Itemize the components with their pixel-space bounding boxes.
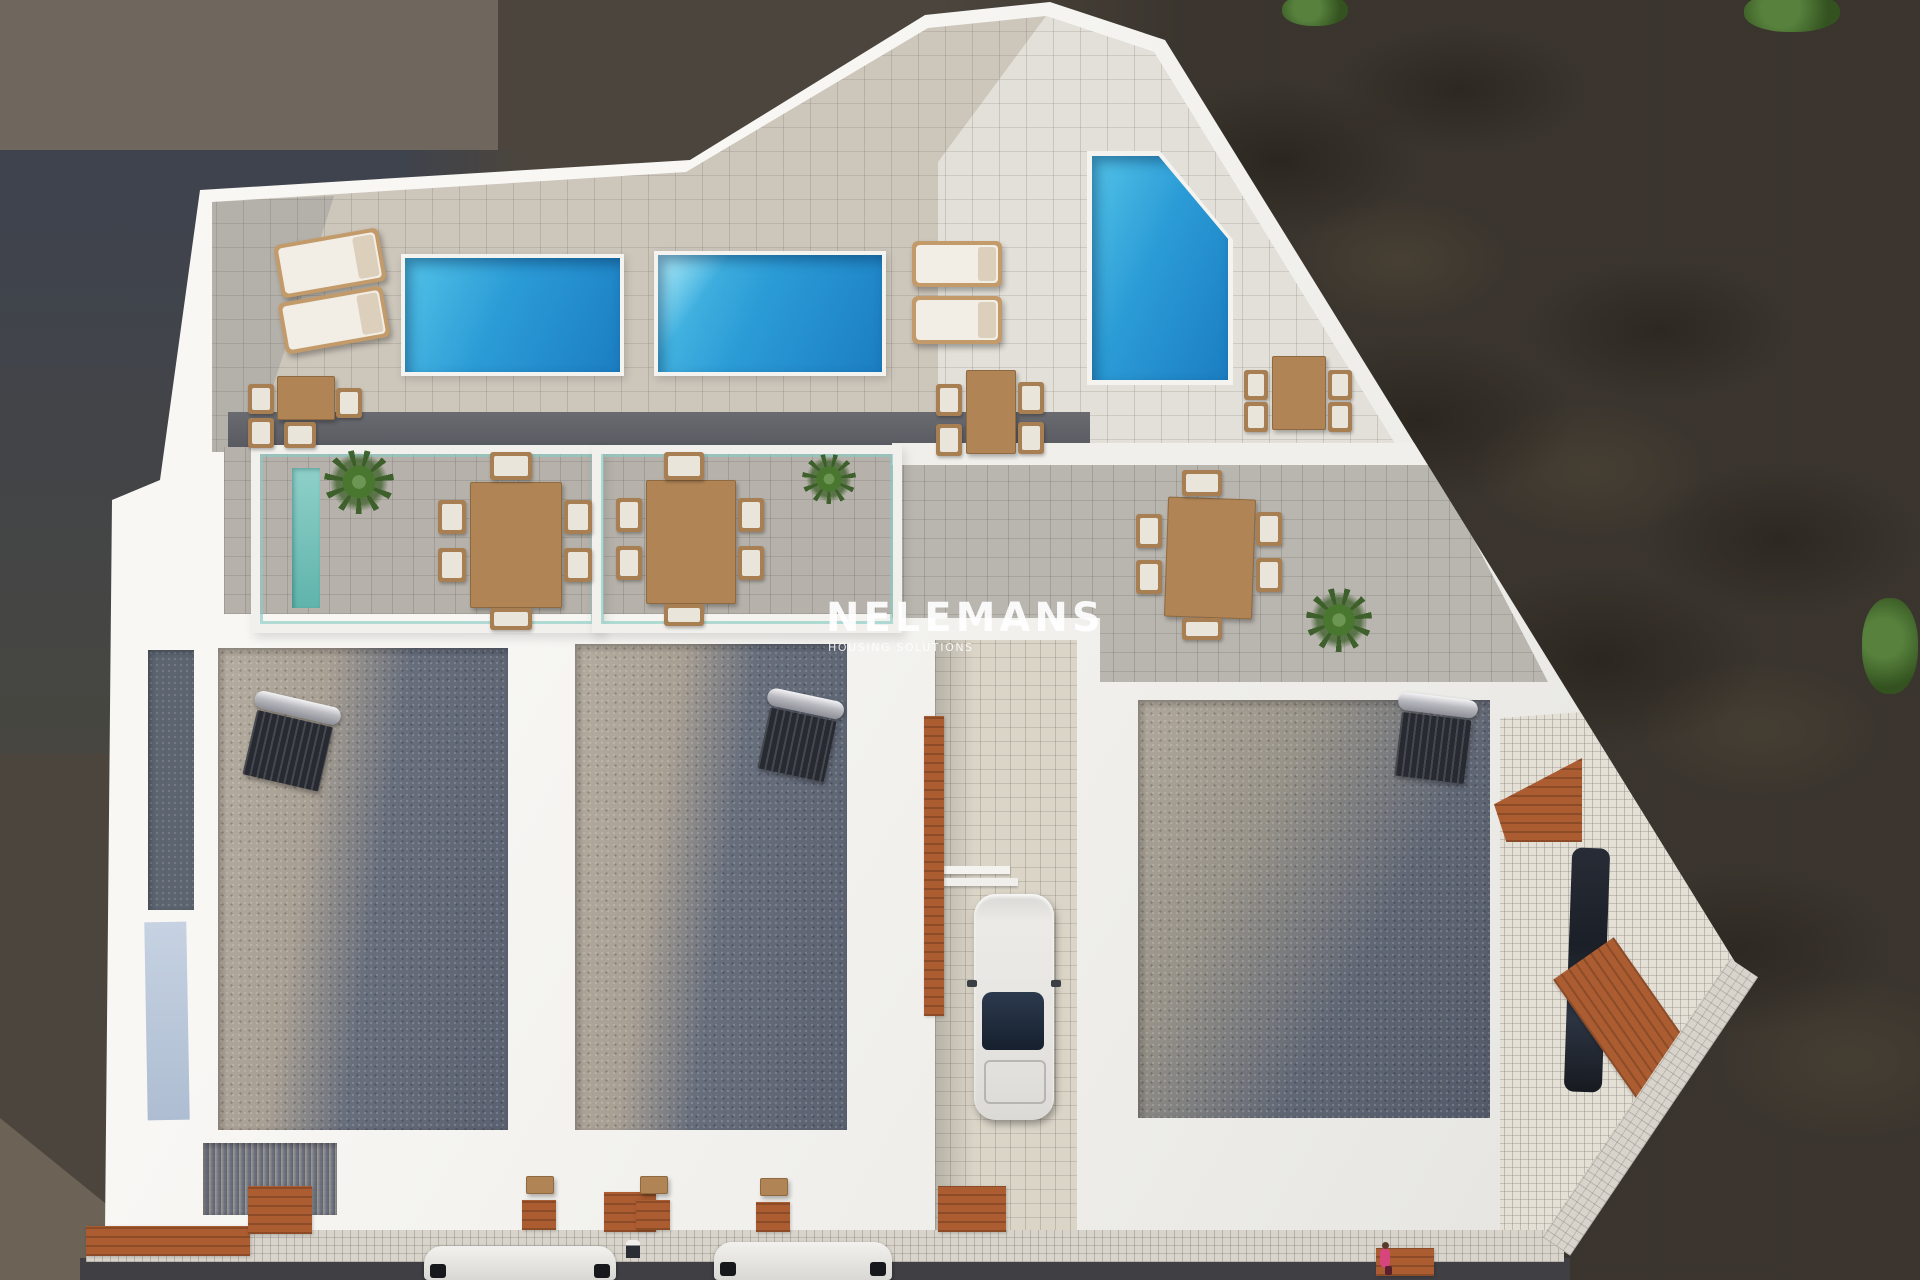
dining-chair: [1018, 382, 1044, 414]
sun-lounger: [912, 241, 1002, 287]
porch-table: [526, 1176, 554, 1194]
dining-chair: [1182, 470, 1222, 496]
pool-1-water: [405, 258, 620, 372]
dining-chair: [664, 604, 704, 626]
terracotta-deck: [248, 1186, 312, 1234]
porch-set: [522, 1176, 558, 1232]
dining-chair: [1328, 370, 1352, 400]
driveway-step: [938, 866, 1010, 874]
sun-lounger: [912, 296, 1002, 344]
bistro-chair: [248, 418, 274, 448]
pool-2-water: [658, 255, 882, 372]
potted-plant: [802, 454, 856, 504]
bush: [1282, 0, 1348, 26]
terracotta-strip-driveway: [924, 716, 944, 1016]
pedestrian-head: [1382, 1242, 1389, 1249]
bush: [1744, 0, 1840, 32]
dining-chair: [564, 500, 592, 534]
driveway-car: [974, 894, 1054, 1120]
bush: [1862, 598, 1918, 694]
dining-table-a: [470, 482, 562, 608]
pedestrian-body: [1380, 1248, 1390, 1268]
car-mirror: [967, 980, 977, 987]
porch-mat: [636, 1200, 670, 1230]
street-car: [424, 1246, 616, 1280]
car-wheel: [870, 1262, 886, 1276]
bistro-table: [277, 376, 335, 420]
car-wheel: [720, 1262, 736, 1276]
dining-chair: [616, 498, 642, 532]
terracotta-deck: [86, 1226, 250, 1256]
dining-chair: [664, 452, 704, 480]
dining-chair: [1018, 422, 1044, 454]
bistro-chair: [248, 384, 274, 414]
car-mirror: [1051, 980, 1061, 987]
driveway-step: [938, 878, 1018, 886]
porch-mat: [756, 1202, 790, 1232]
potted-plant: [1306, 588, 1372, 652]
dining-chair: [438, 500, 466, 534]
skylight-glass: [144, 922, 189, 1121]
watermark: NELEMANS HOUSING SOLUTIONS: [826, 596, 1105, 654]
pool-2: [654, 251, 886, 376]
dining-chair: [438, 548, 466, 582]
dining-chair: [1182, 618, 1222, 640]
dining-chair: [1244, 402, 1268, 432]
gravel-strip-left-wing: [148, 650, 194, 910]
porch-set: [756, 1178, 792, 1234]
dining-chair: [616, 546, 642, 580]
bistro-chair: [284, 422, 316, 448]
aerial-render-scene: NELEMANS HOUSING SOLUTIONS: [0, 0, 1920, 1280]
dining-table-c: [1164, 497, 1256, 620]
dining-chair: [738, 498, 764, 532]
dining-table-3: [1272, 356, 1326, 430]
solar-panel: [1394, 712, 1471, 784]
street-car: [714, 1242, 892, 1280]
pedestrian-bag: [1385, 1266, 1392, 1275]
bollard: [626, 1240, 640, 1258]
watermark-subtitle: HOUSING SOLUTIONS: [828, 641, 1105, 654]
car-wheel: [430, 1264, 446, 1278]
car-roof-line: [984, 1060, 1046, 1104]
dining-chair: [564, 548, 592, 582]
dining-chair: [738, 546, 764, 580]
ground-sunlit-band: [0, 0, 498, 150]
dining-chair: [490, 452, 532, 480]
car-wheel: [594, 1264, 610, 1278]
porch-table: [640, 1176, 668, 1194]
dining-chair: [1244, 370, 1268, 400]
dining-chair: [1256, 558, 1282, 592]
porch-table: [760, 1178, 788, 1196]
bistro-chair: [336, 388, 362, 418]
pedestrian: [1378, 1242, 1392, 1276]
car-windshield: [982, 992, 1044, 1050]
watermark-title: NELEMANS: [826, 596, 1105, 640]
solar-water-heater: [752, 687, 845, 783]
dining-chair: [490, 608, 532, 630]
dining-chair: [1256, 512, 1282, 546]
porch-set: [636, 1176, 672, 1232]
solar-water-heater: [1389, 691, 1479, 784]
pool-1: [401, 254, 624, 376]
dining-chair: [1136, 514, 1162, 548]
dining-table-2: [966, 370, 1016, 454]
dining-chair: [936, 384, 962, 416]
porch-mat: [522, 1200, 556, 1230]
dining-chair: [936, 424, 962, 456]
dining-chair: [1136, 560, 1162, 594]
dining-chair: [1328, 402, 1352, 432]
dining-table-b: [646, 480, 736, 604]
terracotta-deck: [938, 1186, 1006, 1232]
potted-plant: [324, 450, 394, 514]
